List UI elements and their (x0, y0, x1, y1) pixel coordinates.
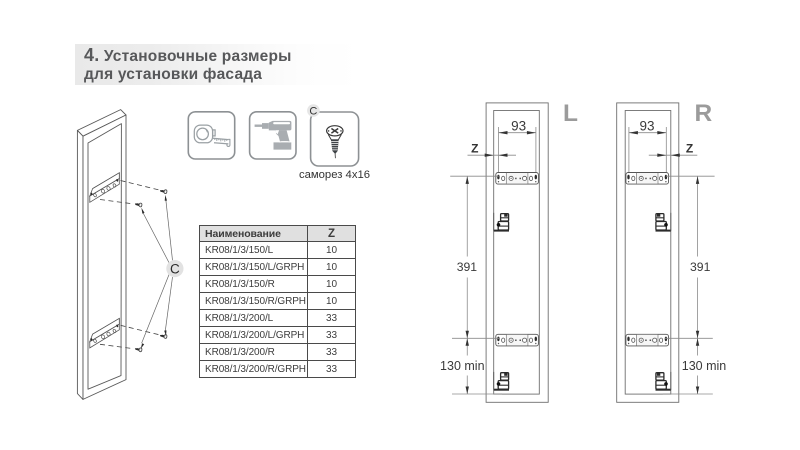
svg-text:130 min: 130 min (682, 359, 727, 373)
svg-text:C: C (309, 105, 317, 117)
svg-text:R: R (695, 100, 713, 127)
svg-text:93: 93 (511, 119, 526, 134)
svg-text:93: 93 (639, 119, 654, 134)
svg-text:Z: Z (686, 142, 693, 156)
svg-text:L: L (563, 100, 578, 127)
svg-text:130 min: 130 min (440, 359, 485, 373)
svg-text:саморез 4х16: саморез 4х16 (299, 169, 370, 181)
svg-text:391: 391 (690, 260, 711, 274)
svg-text:Z: Z (471, 142, 478, 156)
svg-text:C: C (170, 261, 180, 276)
svg-text:391: 391 (457, 260, 478, 274)
